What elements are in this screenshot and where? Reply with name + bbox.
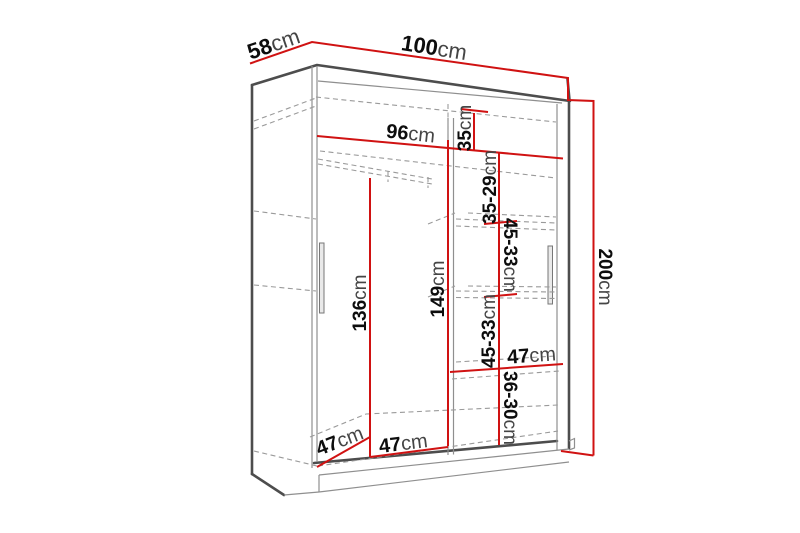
- dim-label-width: 100cm: [400, 30, 469, 65]
- left-door-handle: [320, 243, 325, 313]
- dim-label-hanging-height: 149cm: [428, 260, 449, 317]
- dim-label-top-shelf-space: 35cm: [455, 105, 476, 151]
- dimension-lines: [250, 42, 594, 467]
- dim-tick-height-bottom: [561, 451, 594, 456]
- dim-label-door-clear-height: 136cm: [350, 274, 371, 331]
- dim-label-depth: 58cm: [244, 23, 303, 64]
- wardrobe-dimension-diagram: 58cm 100cm 96cm 35cm 35-29cm 45-33cm 149…: [0, 0, 800, 533]
- dim-label-upper-shelf-space: 35-29cm: [480, 150, 501, 224]
- dim-label-bottom-shelf-space: 36-30cm: [499, 371, 520, 445]
- right-door-handle: [548, 246, 553, 304]
- dimension-labels: 58cm 100cm 96cm 35cm 35-29cm 45-33cm 149…: [244, 23, 615, 460]
- dim-label-shelf-space-b: 45-33cm: [479, 294, 500, 368]
- wardrobe-diagram-page: 58cm 100cm 96cm 35cm 35-29cm 45-33cm 149…: [0, 0, 800, 533]
- dim-label-total-height: 200cm: [594, 248, 615, 305]
- dim-label-shelf-width: 47cm: [506, 343, 556, 368]
- dim-label-shelf-space-a: 45-33cm: [499, 218, 520, 292]
- dim-line-width-depth-height: [250, 42, 594, 456]
